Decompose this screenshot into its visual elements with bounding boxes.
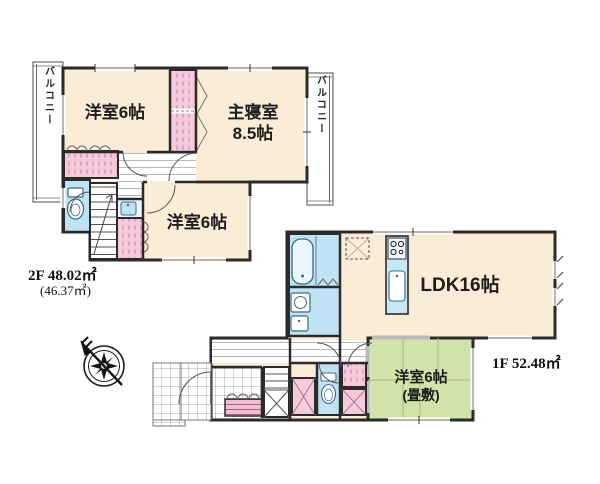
entrance-porch: [153, 363, 211, 426]
bathtub-icon: [292, 239, 313, 284]
f2-area-sub-label: (46.37㎡): [40, 283, 91, 298]
f2-master-label-2: 8.5帖: [233, 123, 274, 143]
stairs-1f: [264, 367, 289, 417]
balcony-left: バルコニー: [33, 62, 63, 202]
washing-machine-icon: [291, 293, 310, 312]
f2-closet-nw: [64, 151, 118, 178]
f2-closet-s: [117, 218, 143, 259]
kitchen-sink-icon: [389, 271, 405, 301]
f2-hall-floor2: [117, 181, 143, 199]
floor-plan-drawing: バルコニー バルコニー: [0, 0, 600, 484]
toilet-icon-2f: [68, 188, 84, 219]
toilet-icon-1f: [321, 373, 336, 404]
f1-tatami-label-2: (畳敷): [402, 387, 439, 403]
washbasin-faucet: [127, 204, 129, 206]
washroom-sink-icon: [291, 316, 308, 331]
balcony-right-label: バルコニー: [315, 75, 327, 135]
f2-west-room-label: 洋室6帖: [85, 102, 145, 122]
f1-tatami-label-1: 洋室6帖: [394, 368, 447, 386]
f1-ldk-label: LDK16帖: [420, 273, 499, 296]
f2-master-label-1: 主寝室: [228, 102, 279, 122]
balcony-left-label: バルコニー: [43, 66, 55, 126]
balcony-right: バルコニー: [307, 73, 333, 205]
f2-south-room-label: 洋室6帖: [167, 212, 227, 232]
floor-plan-page: バルコニー バルコニー: [0, 0, 600, 484]
f1-area-label: 1F 52.48㎡: [492, 354, 561, 372]
f2-area-label: 2F 48.02㎡: [28, 266, 97, 284]
f1-closet-b: [342, 363, 366, 387]
kitchen-counter: [386, 236, 408, 314]
stove-icon: [388, 238, 406, 259]
compass-icon: [81, 337, 124, 386]
